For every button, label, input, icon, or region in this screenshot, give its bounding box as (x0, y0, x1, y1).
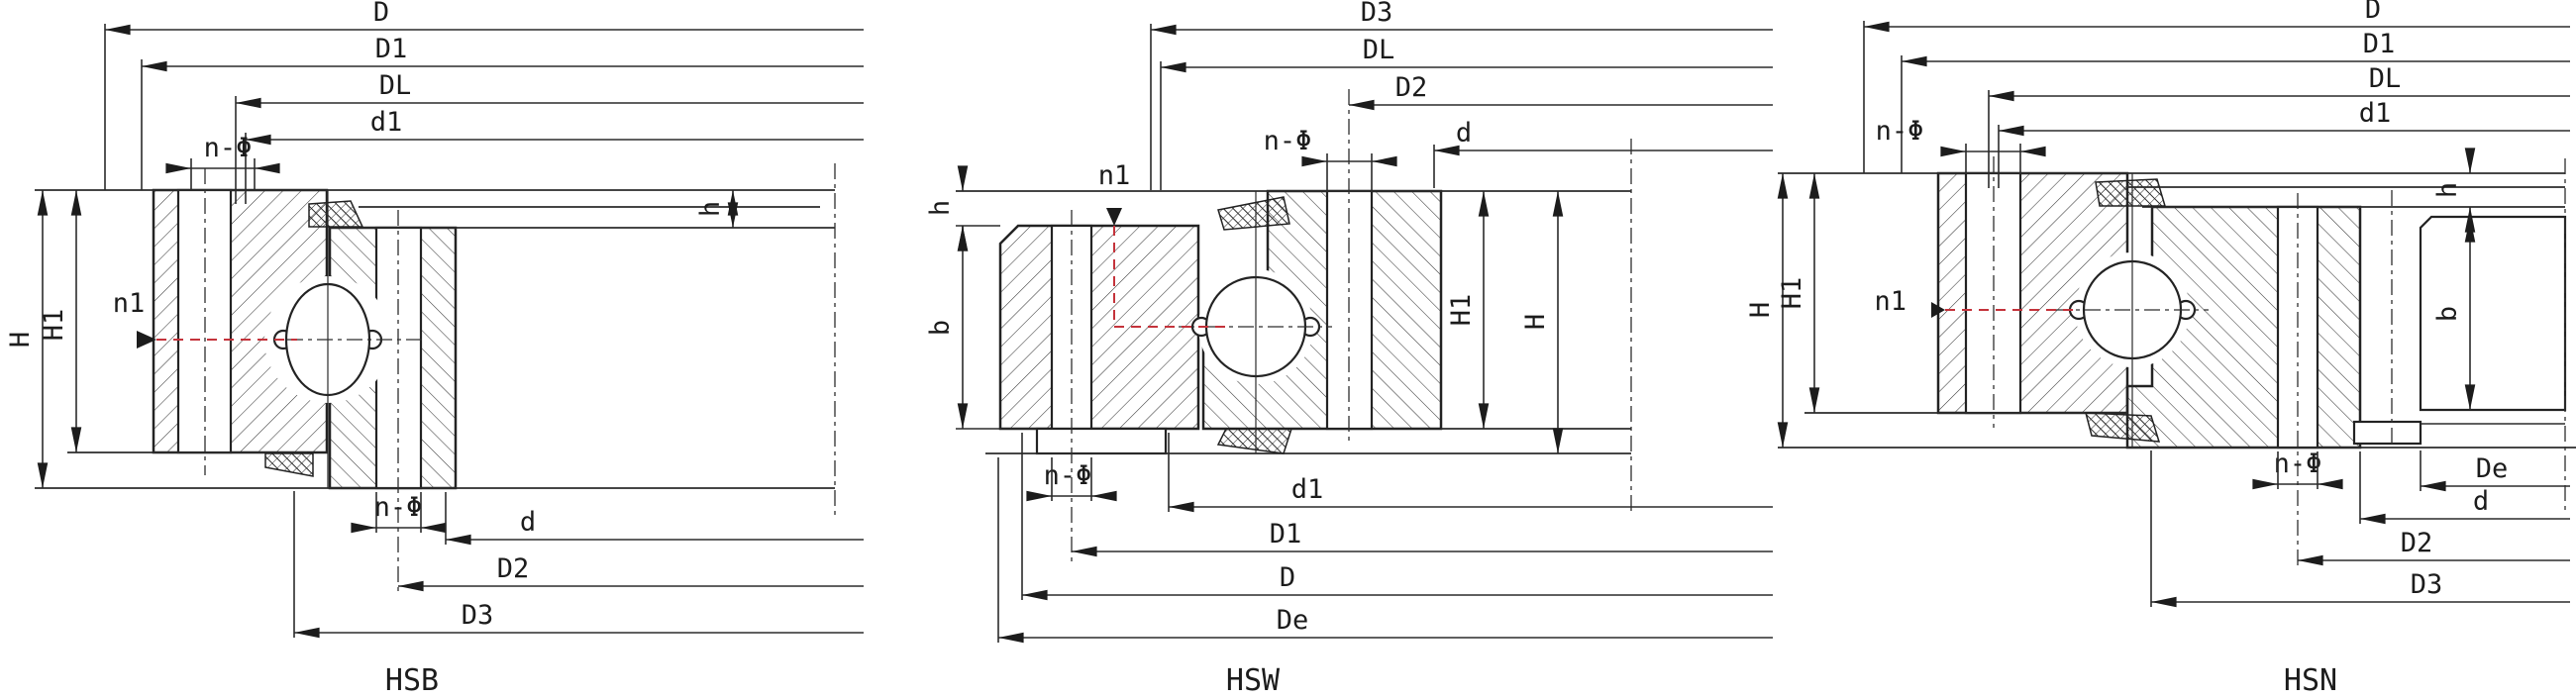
hsn-title: HSN (2284, 663, 2337, 698)
hsb-top-dimensions: D D1 DL d1 n-Φ (105, 0, 864, 204)
hsb-bottom-dimensions: n-Φ d D2 D3 (294, 491, 864, 638)
hsn-dim-label-De: De (2476, 453, 2509, 484)
hsb-dim-label-D3: D3 (462, 600, 494, 631)
hsb-dim-label-D2: D2 (497, 553, 530, 584)
hsw-dim-label-D1: D1 (1270, 519, 1302, 550)
hsw-n1-arrow (1106, 208, 1122, 226)
hsn-bottom-seal (2086, 413, 2159, 442)
hsw-dim-label-H: H (1520, 314, 1551, 330)
hsb-dim-label-H1: H1 (39, 309, 69, 342)
hsw-top-seal (1218, 197, 1289, 230)
hsn-dim-label-h: h (2432, 182, 2463, 198)
hsw-dim-label-d1: d1 (1291, 474, 1324, 505)
hsb-dim-label-d1: d1 (370, 107, 403, 138)
hsw-dim-label-d: d (1456, 118, 1472, 149)
hsb-label-n1: n1 (113, 288, 146, 319)
hsn-dim-label-H1: H1 (1777, 277, 1807, 310)
hsb-dim-label-D: D (373, 0, 389, 28)
hsb-dim-label-d: d (520, 507, 536, 538)
technical-drawing-canvas: D D1 DL d1 n-Φ H H1 n1 h (0, 0, 2576, 700)
hsw-dim-label-DL: DL (1363, 35, 1395, 65)
hsw-title: HSW (1226, 663, 1281, 698)
hsw-bottom-dimensions: n-Φ d1 D1 D De (998, 433, 1773, 643)
hsb-dim-label-nphi-bottom: n-Φ (374, 492, 423, 523)
hsn-dim-label-H: H (1745, 302, 1776, 318)
hsb-top-seal (309, 201, 362, 227)
hsn-dim-label-nphi-bottom: n-Φ (2274, 449, 2322, 479)
hsn-dim-label-D: D (2365, 0, 2381, 25)
hsb-dim-label-H: H (5, 332, 36, 348)
hsw-dim-label-nphi-top: n-Φ (1264, 126, 1312, 156)
hsn-dim-label-D3: D3 (2411, 569, 2443, 600)
hsn-dim-label-D2: D2 (2401, 528, 2433, 558)
hsn-top-dimensions: D D1 DL d1 n-Φ (1864, 0, 2570, 188)
hsb-body (35, 163, 835, 594)
hsw-dim-label-b: b (925, 320, 956, 336)
hsb-dim-label-h: h (695, 201, 726, 217)
hsb-dim-label-D1: D1 (375, 34, 408, 64)
hsn-dim-label-d: d (2473, 486, 2489, 517)
hsn-dim-label-D1: D1 (2363, 29, 2396, 59)
hsb-diagram: D D1 DL d1 n-Φ H H1 n1 h (5, 0, 864, 698)
hsn-dim-label-nphi-top: n-Φ (1876, 116, 1924, 147)
hsn-body (1778, 156, 2576, 566)
hsw-dim-label-h: h (925, 200, 956, 216)
hsw-dim-label-nphi-bottom: n-Φ (1044, 460, 1092, 491)
hsn-bottom-dimensions: n-Φ De d D2 D3 (2151, 449, 2570, 607)
hsb-bottom-seal (265, 453, 313, 476)
hsn-dim-label-b: b (2432, 306, 2463, 322)
hsw-dim-label-D3: D3 (1361, 0, 1393, 28)
hsw-bottom-seal (1218, 429, 1291, 453)
hsb-dim-label-DL: DL (379, 70, 412, 101)
hsb-h-dimension: h (695, 190, 733, 228)
hsw-inner-dimensions: H1 H (1446, 191, 1558, 453)
hsw-label-n1: n1 (1098, 160, 1131, 191)
hsb-title: HSB (385, 663, 439, 698)
hsw-dim-label-D: D (1280, 562, 1295, 593)
hsn-dim-label-d1: d1 (2359, 98, 2392, 129)
hsw-dim-label-D2: D2 (1395, 72, 1428, 103)
hsw-diagram: D3 DL D2 d n-Φ n1 h b H1 (925, 0, 1773, 698)
hsn-label-n1: n1 (1874, 286, 1906, 317)
hsn-top-seal (2096, 179, 2165, 206)
hsb-dim-label-nphi-top: n-Φ (204, 133, 253, 163)
hsn-dim-label-DL: DL (2369, 63, 2402, 94)
hsw-dim-label-De: De (1277, 605, 1309, 636)
hsn-diagram: D D1 DL d1 n-Φ H H1 n1 h b (1745, 0, 2576, 698)
bearing-cross-sections-svg: D D1 DL d1 n-Φ H H1 n1 h (0, 0, 2576, 700)
hsw-dim-label-H1: H1 (1446, 294, 1477, 327)
